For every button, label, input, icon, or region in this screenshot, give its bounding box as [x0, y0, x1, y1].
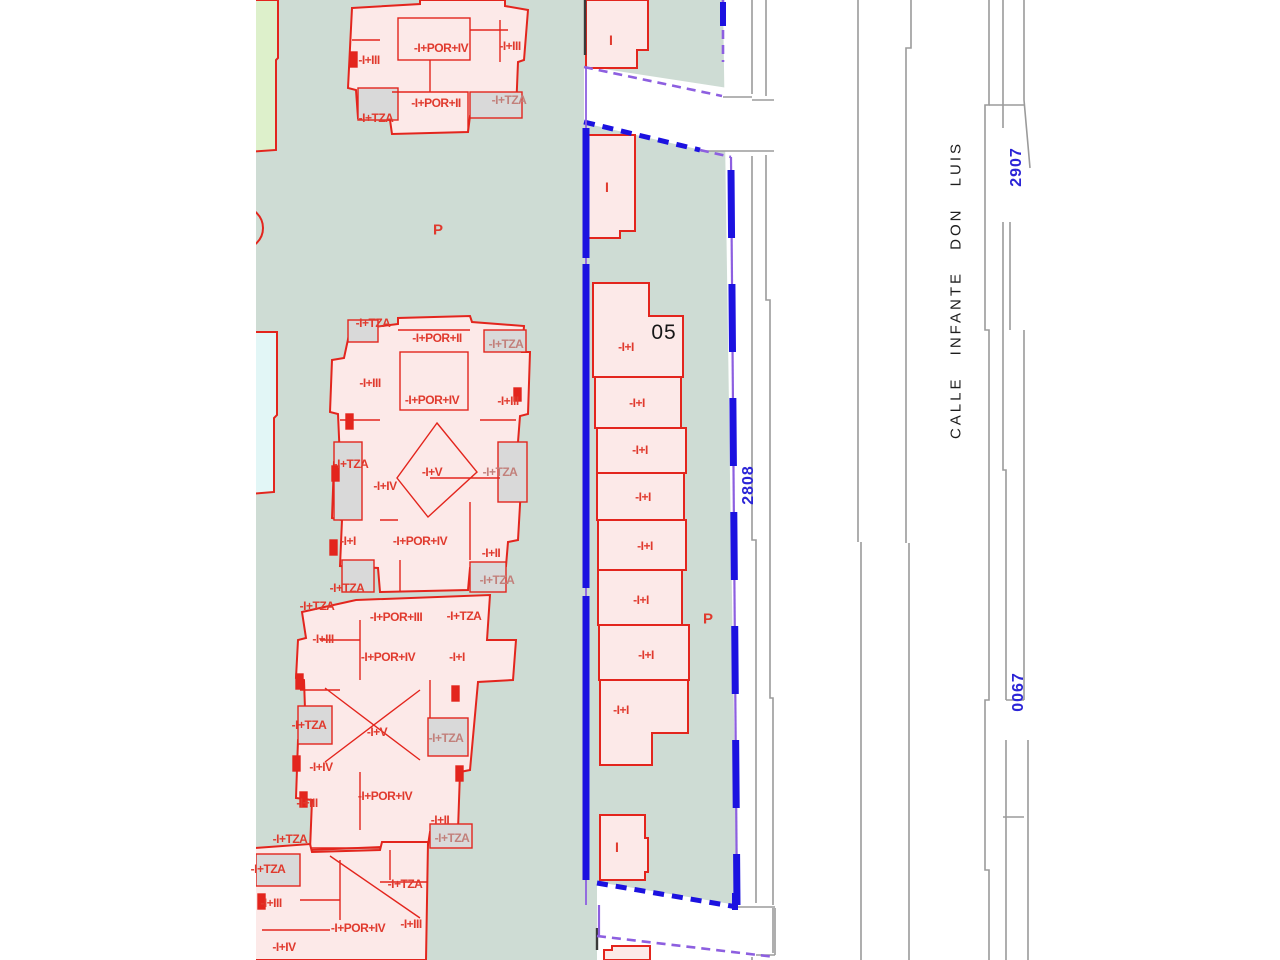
building-i-mid: [587, 135, 635, 238]
map-canvas[interactable]: [0, 0, 1280, 960]
row-house: [597, 428, 686, 473]
map-margin-left: [0, 0, 256, 960]
row-house-strip[interactable]: [593, 283, 689, 765]
row-house: [595, 377, 681, 428]
map-margin-right: [1036, 0, 1280, 960]
cadastral-map-viewport[interactable]: 05 CALLE INFANTE DON LUIS 2907 2808 0067…: [0, 0, 1280, 960]
row-house: [597, 473, 684, 520]
row-house: [598, 570, 682, 625]
building-partial-bottom: [604, 946, 650, 960]
building-i-bottom: [600, 815, 648, 880]
row-house: [598, 520, 686, 570]
row-house: [599, 625, 689, 680]
